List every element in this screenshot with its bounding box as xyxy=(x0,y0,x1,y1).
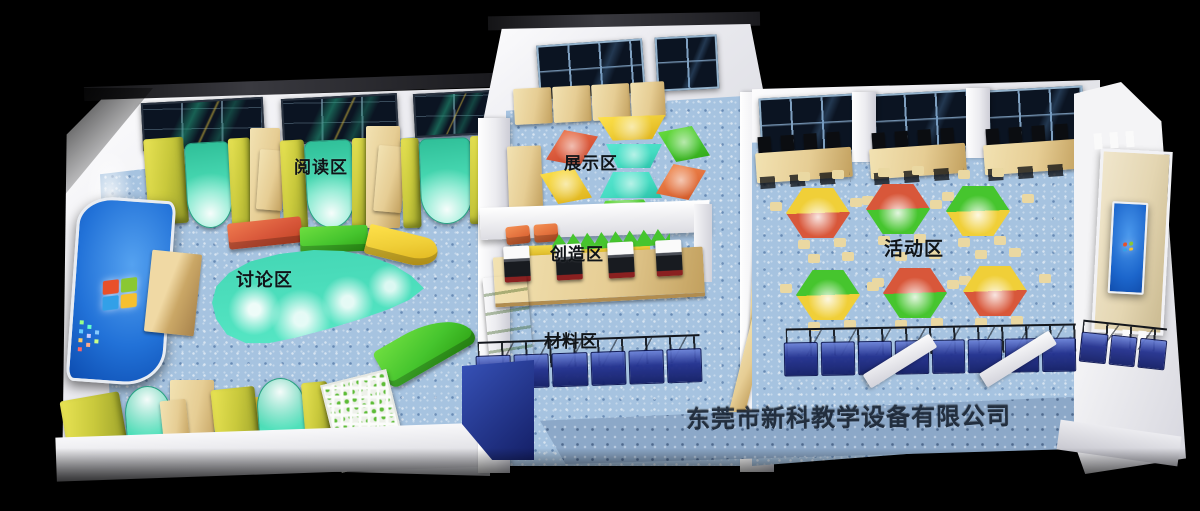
material-bin xyxy=(552,352,588,387)
podium xyxy=(144,250,202,337)
storage-cabinet xyxy=(513,87,553,125)
stool-orange xyxy=(505,225,531,245)
storage-cabinet xyxy=(552,85,592,123)
wall-sconces xyxy=(1093,130,1140,149)
lounge-chair xyxy=(304,139,357,229)
desktop-icons xyxy=(80,320,84,324)
windows-logo-icon xyxy=(1123,241,1133,251)
chair-set xyxy=(867,282,879,291)
material-bin xyxy=(1079,332,1109,365)
material-bin xyxy=(666,348,702,383)
material-bin xyxy=(590,351,626,386)
storage-cabinet xyxy=(591,83,631,121)
chair-set xyxy=(947,280,959,289)
zone-label-discussion: 讨论区 xyxy=(236,272,293,290)
printer-machine xyxy=(655,239,683,276)
window xyxy=(655,34,720,91)
material-bin xyxy=(628,349,664,384)
arc-bench-green xyxy=(300,225,369,253)
chair-set xyxy=(780,284,792,293)
material-bin xyxy=(784,342,818,377)
zone-label-materials: 材料区 xyxy=(544,334,598,351)
zone-label-creation: 创造区 xyxy=(550,247,604,264)
windows-logo-icon xyxy=(102,277,137,311)
bottom-shadow xyxy=(0,448,1200,511)
company-watermark: 东莞市新科教学设备有限公司 xyxy=(686,404,1011,431)
classroom-floorplan-render: 阅读区 展示区 讨论区 创造区 材料区 活动区 东莞市新科教学设备有限公司 xyxy=(0,0,1200,511)
chair-set xyxy=(930,200,942,209)
chair-set xyxy=(850,198,862,207)
printer-machine xyxy=(607,241,635,278)
sideboard xyxy=(507,145,543,208)
lounge-chair xyxy=(419,137,474,225)
zone-label-activity: 活动区 xyxy=(884,240,944,259)
lounge-chair xyxy=(184,141,234,229)
material-bin xyxy=(821,341,855,376)
chair-set xyxy=(770,202,782,211)
material-bin xyxy=(931,339,965,374)
storage-cabinet xyxy=(630,81,666,119)
material-bin xyxy=(1138,338,1168,371)
material-bin xyxy=(1108,335,1138,368)
zone-label-display: 展示区 xyxy=(564,156,618,173)
zone-label-reading: 阅读区 xyxy=(294,160,348,177)
wall-mounted-screen xyxy=(1108,201,1149,295)
stool-orange xyxy=(533,223,558,243)
